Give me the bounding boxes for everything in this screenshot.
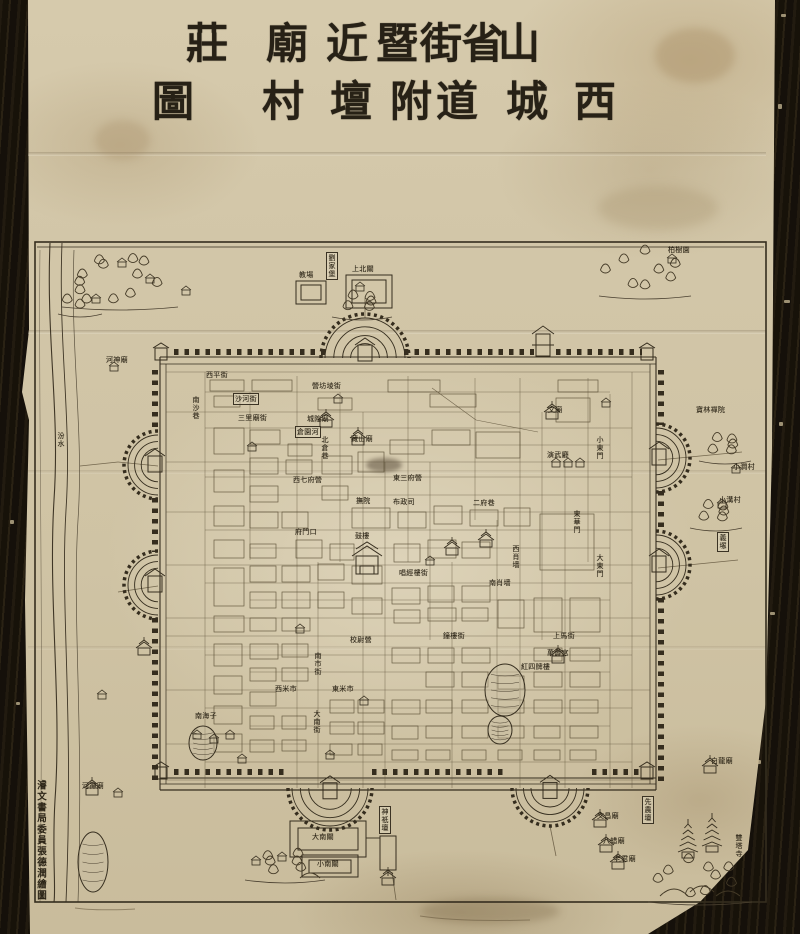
map-label: 南市街: [314, 652, 322, 676]
map-label: 北倉巷: [321, 436, 329, 460]
map-label: 大南街: [313, 710, 321, 734]
map-label: 唱經樓街: [399, 569, 428, 577]
map-label: 南肖墙: [489, 579, 511, 587]
map-label: 營坊堎街: [312, 382, 341, 390]
map-label: 八蜡廟: [603, 837, 625, 845]
map-label: 紅四牌樓: [521, 663, 550, 671]
map-label: 汾水: [57, 432, 65, 448]
map-label: 小澗村: [733, 463, 755, 471]
map-label: 南海子: [195, 712, 217, 720]
map-label: 河神廟: [106, 356, 128, 364]
map-label: 沙河街: [233, 393, 259, 405]
map-label: 神祇壇: [379, 806, 391, 834]
map-label: 河神廟: [82, 782, 104, 790]
map-label: 三里廟街: [238, 414, 267, 422]
map-label: 大東門: [596, 554, 604, 578]
colophon: 濬文書局委員張德潤繪圖: [33, 780, 47, 912]
map-label: 西平街: [206, 371, 228, 379]
map-label: 教場: [299, 271, 314, 279]
map-label: 東華門: [573, 510, 581, 534]
map-label: 布政司: [393, 498, 415, 506]
map-label: 寶林禪院: [696, 406, 725, 414]
map-label: 府門口: [295, 528, 317, 536]
map-label: 撫院: [356, 497, 371, 505]
map-label: 先農壇: [642, 796, 654, 824]
map-label: 東米市: [332, 685, 354, 693]
map-scroll-scan: 莊廟近暨街省山圖村壇附道城西 教場上北關劉家堡柏樹園河神廟汾水寶林禪院小澗村小溝…: [0, 0, 800, 934]
map-label: 老君廟: [614, 855, 636, 863]
map-label: 倉園河: [295, 426, 321, 438]
map-label: 文昌廟: [597, 812, 619, 820]
map-label: 上馬街: [553, 632, 575, 640]
map-label: 演武廳: [547, 451, 569, 459]
map-label: 西七府營: [293, 476, 322, 484]
map-label: 藏山廟: [351, 435, 373, 443]
map-label: 二府巷: [473, 499, 495, 507]
map-label: 東三府營: [393, 474, 422, 482]
map-label: 鐘樓街: [443, 632, 465, 640]
map-label: 萬壽宮: [547, 649, 569, 657]
map-label: 西米市: [275, 685, 297, 693]
map-label: 南沙巷: [192, 396, 200, 420]
map-labels-layer: 教場上北關劉家堡柏樹園河神廟汾水寶林禪院小澗村小溝村義塚白龍廟文昌廟八蜡廟老君廟…: [0, 0, 800, 934]
map-label: 鼓樓: [355, 532, 370, 540]
map-label: 義塚: [717, 532, 729, 552]
map-label: 小南關: [317, 860, 339, 868]
map-label: 雙塔寺: [735, 834, 743, 858]
map-label: 小東門: [596, 436, 604, 460]
map-label: 城隍廟: [307, 415, 329, 423]
map-label: 西肖墙: [512, 545, 520, 569]
map-label: 文廟: [548, 406, 563, 414]
map-label: 劉家堡: [326, 252, 338, 280]
map-label: 大南關: [312, 833, 334, 841]
map-label: 柏樹園: [668, 246, 690, 254]
map-label: 校尉營: [350, 636, 372, 644]
map-label: 白龍廟: [711, 757, 733, 765]
map-label: 小溝村: [719, 496, 741, 504]
map-label: 上北關: [352, 265, 374, 273]
